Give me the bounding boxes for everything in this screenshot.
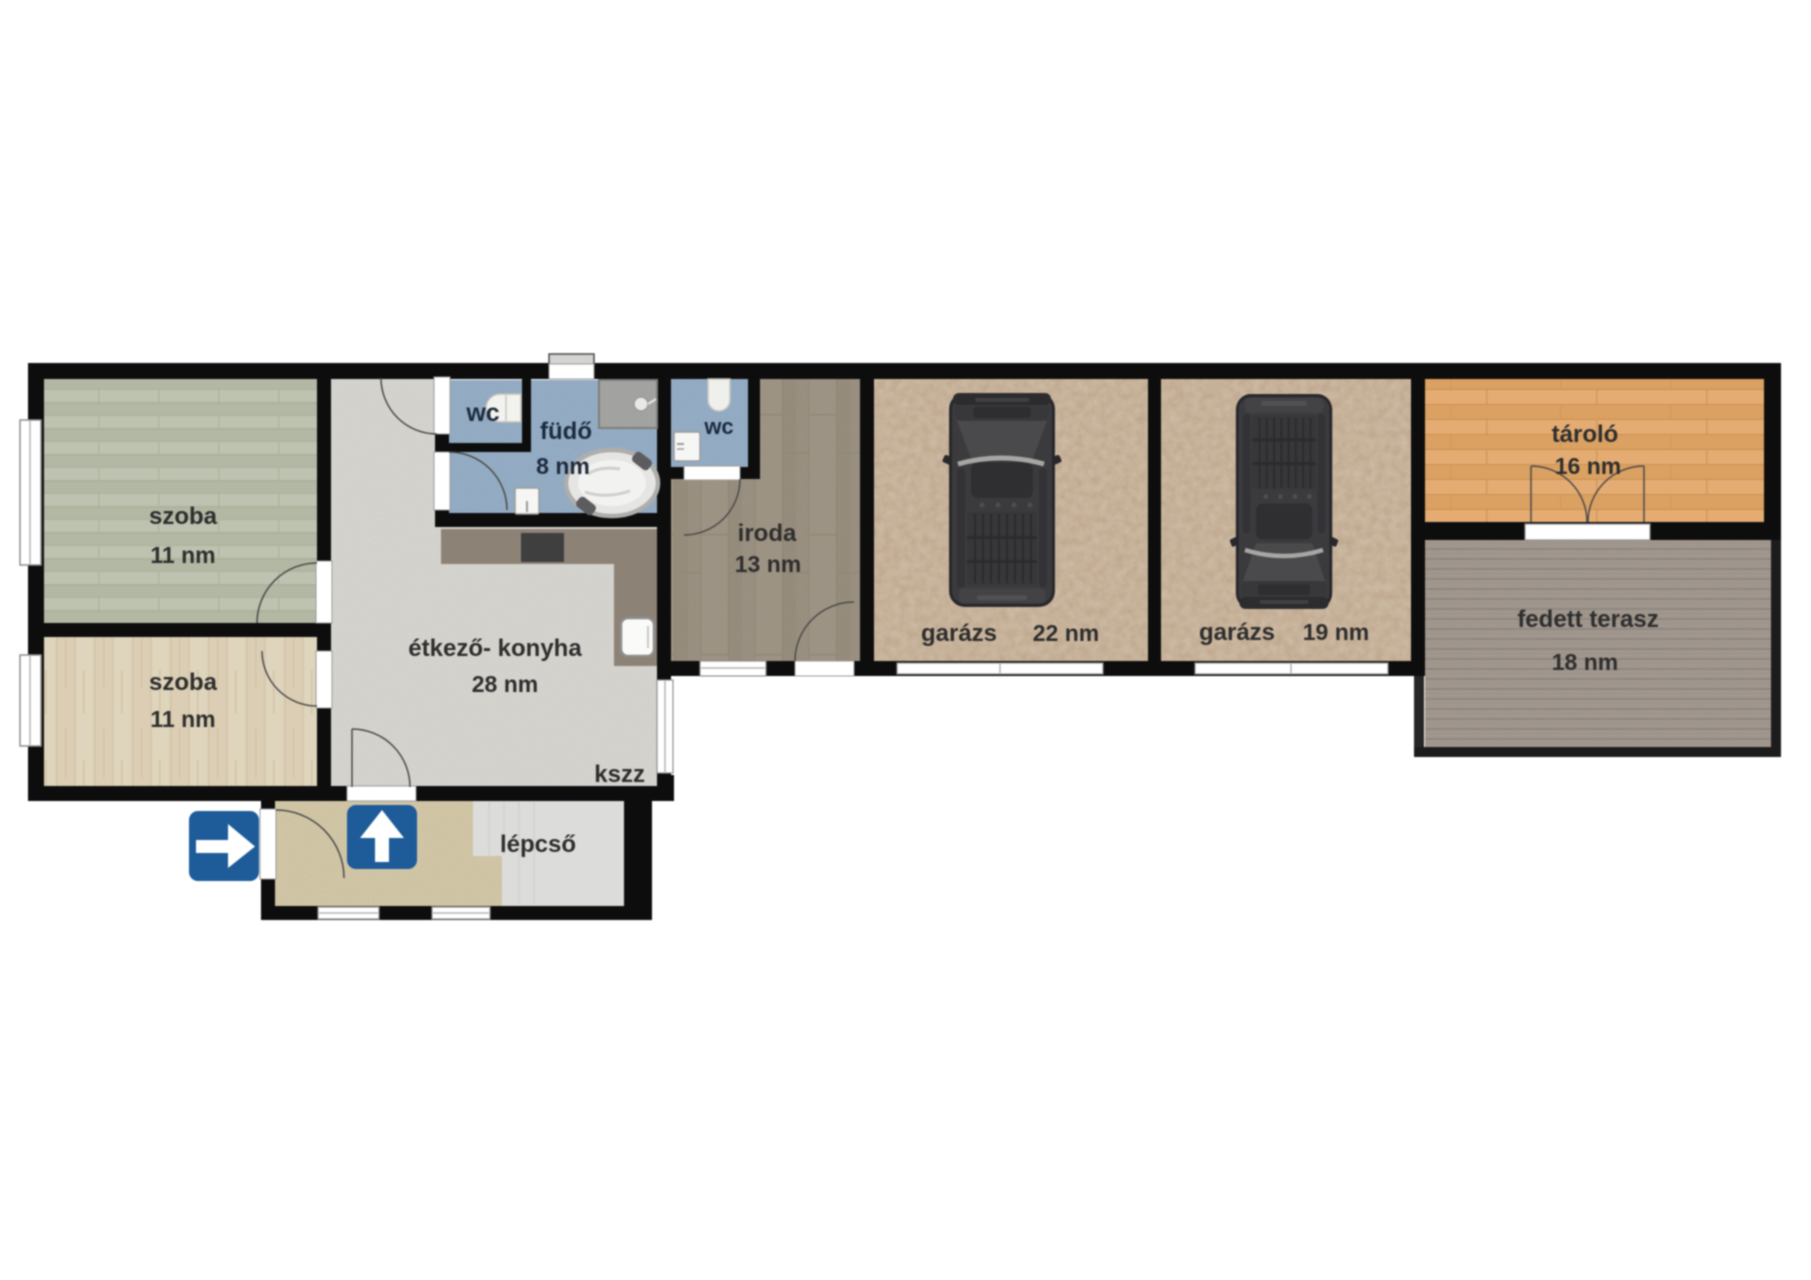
svg-text:19 nm: 19 nm — [1303, 619, 1369, 645]
svg-text:22 nm: 22 nm — [1033, 620, 1099, 646]
svg-text:garázs: garázs — [921, 620, 997, 647]
svg-text:étkező- konyha: étkező- konyha — [408, 635, 582, 662]
svg-text:13 nm: 13 nm — [735, 551, 801, 577]
svg-text:11 nm: 11 nm — [150, 706, 215, 732]
svg-text:11 nm: 11 nm — [150, 542, 215, 568]
svg-text:16 nm: 16 nm — [1555, 453, 1621, 479]
svg-text:wc: wc — [465, 399, 499, 427]
svg-text:fedett terasz: fedett terasz — [1517, 606, 1658, 633]
svg-text:28 nm: 28 nm — [472, 671, 538, 697]
svg-text:szoba: szoba — [149, 669, 218, 696]
svg-text:tároló: tároló — [1552, 421, 1619, 448]
svg-text:18 nm: 18 nm — [1552, 649, 1618, 675]
svg-text:lépcső: lépcső — [500, 831, 576, 858]
svg-text:szoba: szoba — [149, 503, 218, 530]
svg-text:wc: wc — [703, 414, 733, 439]
svg-text:8 nm: 8 nm — [536, 453, 590, 479]
svg-text:garázs: garázs — [1199, 619, 1275, 646]
svg-text:kszz: kszz — [594, 761, 645, 788]
svg-text:füdő: füdő — [540, 418, 592, 445]
svg-text:iroda: iroda — [738, 520, 797, 547]
